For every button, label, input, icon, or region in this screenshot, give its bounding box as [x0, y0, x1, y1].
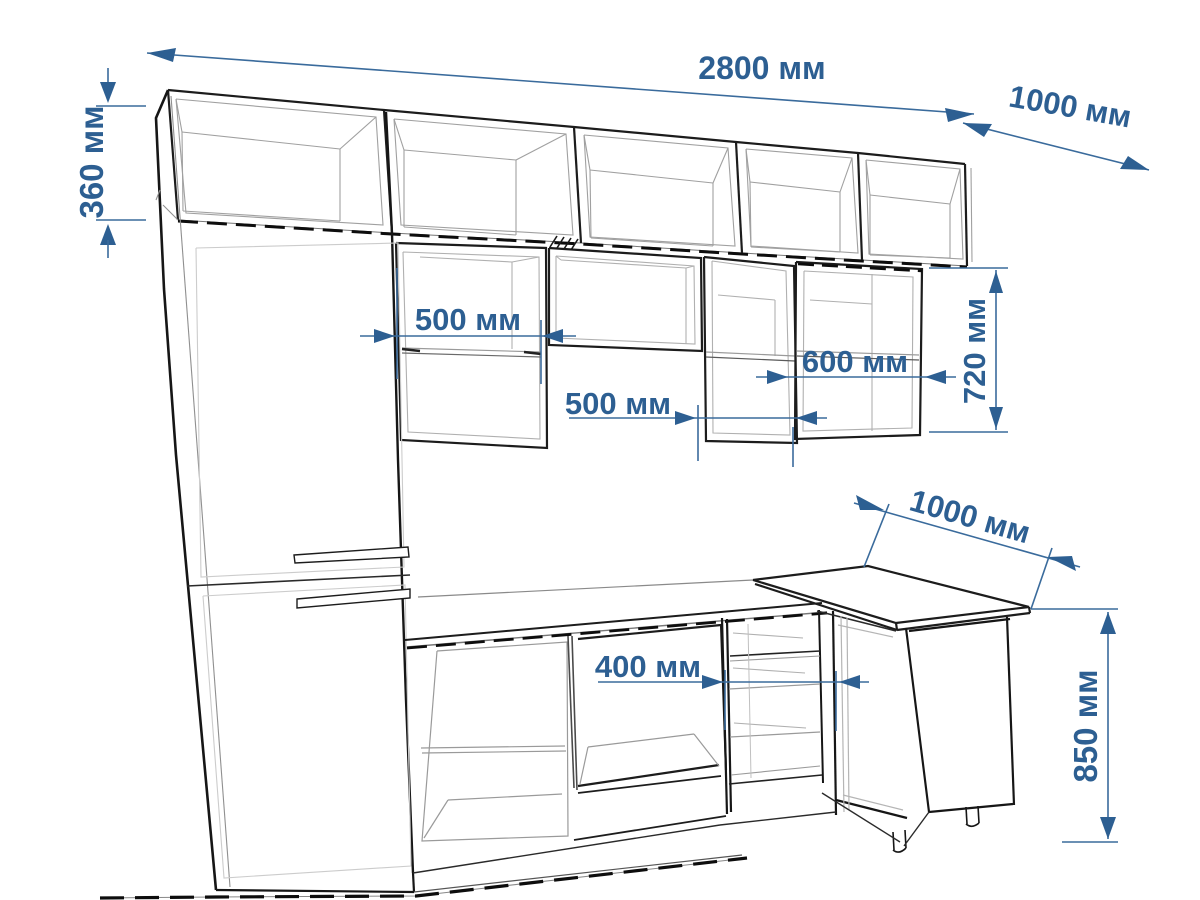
svg-text:1000 мм: 1000 мм: [1006, 79, 1134, 135]
svg-text:720 мм: 720 мм: [957, 298, 992, 404]
svg-text:360 мм: 360 мм: [73, 105, 110, 218]
svg-text:500 мм: 500 мм: [415, 302, 521, 337]
svg-text:850 мм: 850 мм: [1067, 669, 1104, 782]
svg-text:400 мм: 400 мм: [595, 649, 701, 684]
svg-text:600 мм: 600 мм: [802, 344, 908, 379]
svg-text:1000 мм: 1000 мм: [906, 483, 1034, 551]
svg-text:500 мм: 500 мм: [565, 386, 671, 421]
svg-text:2800 мм: 2800 мм: [698, 50, 825, 86]
